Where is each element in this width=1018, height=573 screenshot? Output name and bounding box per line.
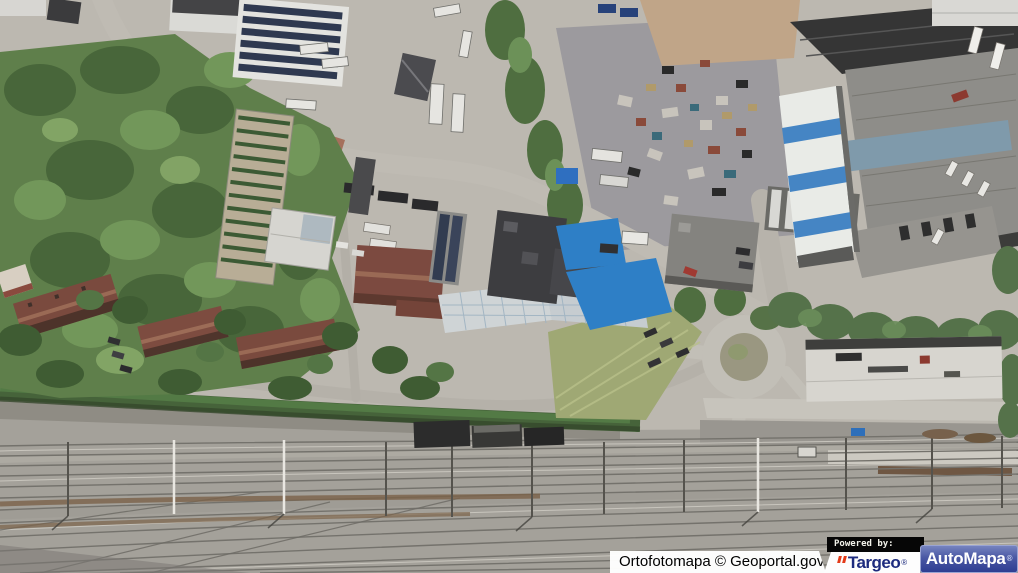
powered-by-label: Powered by: <box>827 537 924 552</box>
blue-tarp <box>556 168 578 184</box>
map-viewport: Ortofotomapa © Geoportal.gov.pl Powered … <box>0 0 1018 573</box>
targeo-quote-icon <box>837 556 847 564</box>
automapa-registered-mark: ® <box>1007 555 1013 563</box>
targeo-logo[interactable]: Targeo ® <box>824 552 920 573</box>
automapa-logo[interactable]: AutoMapa ® <box>920 545 1018 573</box>
white-building-bottom-right <box>805 336 1002 401</box>
aerial-map-canvas[interactable] <box>0 0 1018 573</box>
targeo-logo-text: Targeo <box>848 554 900 571</box>
automapa-logo-text: AutoMapa <box>926 549 1006 569</box>
solar-roof-building <box>233 0 350 87</box>
imagery-credit-bar: Ortofotomapa © Geoportal.gov.pl <box>610 551 826 573</box>
targeo-registered-mark: ® <box>901 559 907 567</box>
imagery-credit-text: Ortofotomapa © Geoportal.gov.pl <box>619 553 839 570</box>
